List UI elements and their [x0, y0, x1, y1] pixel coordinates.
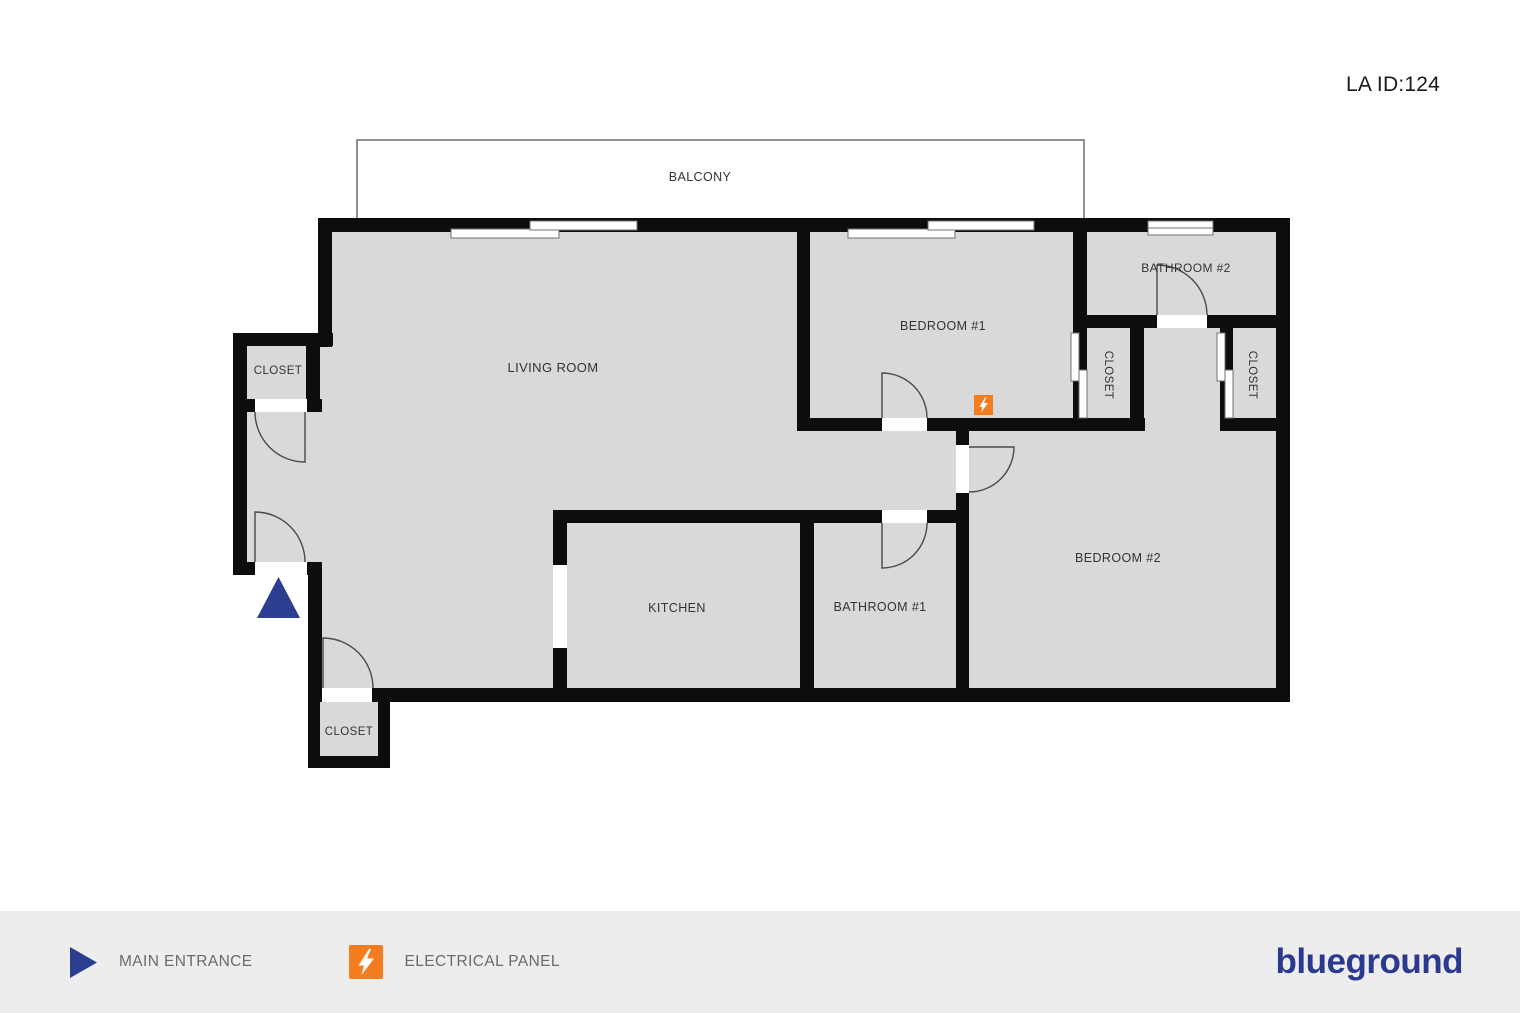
room-label-living-room: LIVING ROOM — [507, 360, 598, 375]
blueground-logo: blueground — [1276, 942, 1463, 982]
electrical-panel-marker — [974, 395, 993, 415]
sliding-door-panel — [1079, 370, 1087, 418]
electrical-panel-icon — [349, 945, 383, 979]
main-entrance-marker — [257, 577, 300, 618]
room-label-kitchen: KITCHEN — [648, 601, 706, 615]
room-label-closet-living-room: CLOSET — [325, 726, 373, 738]
window — [1148, 221, 1213, 228]
floor-plan-page: LA ID:124 — [0, 0, 1520, 1013]
room-floor-areas — [233, 218, 1290, 762]
room-label-closet-hall: CLOSET — [1246, 351, 1258, 399]
window — [928, 221, 1034, 230]
room-label-balcony: BALCONY — [669, 170, 732, 184]
window — [1148, 228, 1213, 235]
room-label-bathroom-1: BATHROOM #1 — [833, 600, 926, 614]
main-entrance-icon — [70, 947, 97, 978]
room-label-bedroom-2: BEDROOM #2 — [1075, 551, 1161, 565]
sliding-door-panel — [1217, 333, 1225, 381]
electrical-panel-label: ELECTRICAL PANEL — [405, 953, 560, 971]
main-entrance-label: MAIN ENTRANCE — [119, 953, 253, 971]
sliding-door-panel — [1225, 370, 1233, 418]
floor-plan-drawing: BALCONY LIVING ROOM BEDROOM #1 BATHROOM … — [0, 0, 1520, 1013]
footer-bar: MAIN ENTRANCE ELECTRICAL PANEL bluegroun… — [0, 911, 1520, 1013]
room-label-bedroom-1: BEDROOM #1 — [900, 319, 986, 333]
room-label-closet-entry: CLOSET — [254, 365, 302, 377]
room-label-bathroom-2: BATHROOM #2 — [1141, 261, 1231, 275]
room-label-closet-bedroom-1: CLOSET — [1102, 351, 1114, 399]
sliding-door-panel — [1071, 333, 1079, 381]
window — [530, 221, 637, 230]
